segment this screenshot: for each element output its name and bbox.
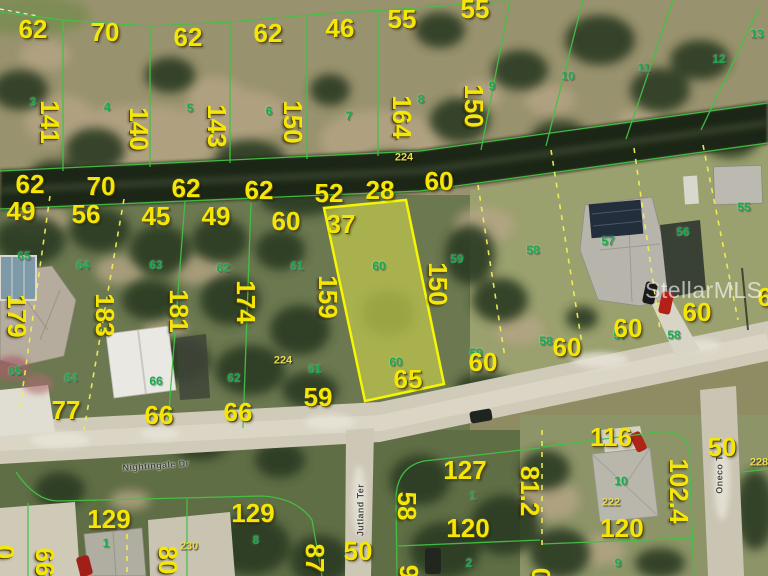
- dimension-label: 129: [231, 500, 274, 526]
- street-name-label: Jutland Ter: [357, 484, 366, 536]
- dimension-label: 66: [224, 399, 253, 425]
- lot-number-label: 65: [8, 365, 21, 377]
- dimension-label: 62: [254, 20, 283, 46]
- street-name-label: Nightingale Dr: [122, 459, 190, 473]
- satellite-parcel-map: 6270626246555514114014315016415034567891…: [0, 0, 768, 576]
- lot-number-label: 1: [103, 537, 110, 549]
- dimension-label: 55: [461, 0, 490, 22]
- lot-number-label: 3: [30, 96, 37, 108]
- dimension-label: 179: [4, 294, 30, 337]
- dimension-label: 174: [233, 280, 259, 323]
- dimension-label: 45: [142, 203, 171, 229]
- dimension-label: 9: [396, 565, 422, 576]
- lot-number-label: 11: [638, 62, 651, 74]
- dimension-label: 49: [7, 198, 36, 224]
- dimension-label: 56: [72, 201, 101, 227]
- dimension-label: 150: [461, 84, 487, 127]
- dimension-label: 150: [280, 100, 306, 143]
- dimension-label: 66: [32, 548, 58, 576]
- lot-number-label: 9: [489, 80, 496, 92]
- dimension-label: 143: [204, 104, 230, 147]
- lot-number-label: 61: [308, 363, 321, 375]
- dimension-label: 0: [528, 568, 554, 576]
- dimension-label: 102.4: [666, 458, 692, 523]
- parcel-id-label: 222: [602, 498, 620, 509]
- dimension-label: 140: [126, 107, 152, 150]
- lot-number-label: 9: [615, 557, 622, 569]
- lot-number-label: 62: [216, 262, 229, 274]
- lot-number-label: 10: [561, 70, 574, 82]
- dimension-label: 59: [304, 384, 333, 410]
- dimension-label: 55: [388, 6, 417, 32]
- dimension-label: 62: [19, 16, 48, 42]
- dimension-label: 80: [155, 546, 181, 575]
- lot-number-label: 65: [17, 250, 30, 262]
- dimension-label: 60: [425, 168, 454, 194]
- lot-number-label: 64: [64, 372, 77, 384]
- dimension-label: 46: [326, 15, 355, 41]
- lot-number-label: 66: [149, 375, 162, 387]
- dimension-label: 87: [302, 544, 328, 573]
- dimension-label: 62: [174, 24, 203, 50]
- lot-number-label: 4: [104, 101, 111, 113]
- lot-number-label: 6: [266, 105, 273, 117]
- lot-number-label: 13: [750, 28, 763, 40]
- lot-number-label: 58: [539, 335, 552, 347]
- dimension-label: 60: [469, 349, 498, 375]
- dimension-label: 62: [16, 171, 45, 197]
- lot-number-label: 57: [601, 235, 614, 247]
- lot-number-label: 61: [290, 260, 303, 272]
- dimension-label: 159: [315, 275, 341, 318]
- lot-number-label: 60: [372, 260, 385, 272]
- dimension-label: 49: [202, 203, 231, 229]
- dimension-label: 150: [425, 262, 451, 305]
- dimension-label: 127: [443, 457, 486, 483]
- lot-number-label: 12: [712, 53, 725, 65]
- lot-number-label: 5: [187, 102, 194, 114]
- dimension-label: 58: [394, 492, 420, 521]
- dimension-label: 141: [37, 100, 63, 143]
- dimension-label: 50: [708, 434, 737, 460]
- dimension-label: 50: [344, 538, 373, 564]
- dimension-label: 120: [600, 515, 643, 541]
- dimension-label: 70: [91, 19, 120, 45]
- lot-number-label: 10: [614, 475, 627, 487]
- lot-number-label: 8: [418, 93, 425, 105]
- parcel-id-label: 228: [750, 458, 768, 469]
- lot-number-label: 55: [737, 201, 750, 213]
- dimension-label: 37: [327, 211, 356, 237]
- dimension-label: 116: [590, 424, 632, 450]
- dimension-label: 181: [166, 289, 192, 332]
- dimension-label: 62: [172, 175, 201, 201]
- dimension-label: 60: [553, 334, 582, 360]
- lot-number-label: 62: [227, 372, 240, 384]
- dimension-label: 81.2: [517, 466, 543, 517]
- dimension-label: 62: [245, 177, 274, 203]
- parcel-id-label: 224: [395, 153, 413, 164]
- lot-number-label: 2: [466, 557, 473, 569]
- lot-number-label: 1: [470, 490, 477, 502]
- lot-number-label: 63: [149, 259, 162, 271]
- parcel-id-label: 224: [274, 356, 292, 367]
- dimension-label: 183: [92, 293, 118, 336]
- dimension-label: 60: [272, 208, 301, 234]
- dimension-label: 120: [446, 515, 489, 541]
- dimension-label: 77: [52, 397, 81, 423]
- dimension-label: 0: [0, 545, 18, 559]
- dimension-label: 66: [145, 402, 174, 428]
- dimension-label: 28: [366, 177, 395, 203]
- dimension-label: 129: [87, 506, 130, 532]
- watermark: StellarMLS: [645, 277, 762, 304]
- lot-number-label: 7: [346, 110, 353, 122]
- dimension-label: 60: [614, 315, 643, 341]
- lot-number-label: 56: [676, 226, 689, 238]
- lot-number-label: 58: [667, 329, 680, 341]
- dimension-label: 70: [87, 173, 116, 199]
- lot-number-label: 8: [253, 534, 260, 546]
- lot-number-label: 64: [76, 259, 89, 271]
- dimension-label: 164: [389, 95, 415, 138]
- dimension-label: 65: [394, 366, 423, 392]
- lot-number-label: 58: [526, 244, 539, 256]
- dimension-label: 52: [315, 180, 344, 206]
